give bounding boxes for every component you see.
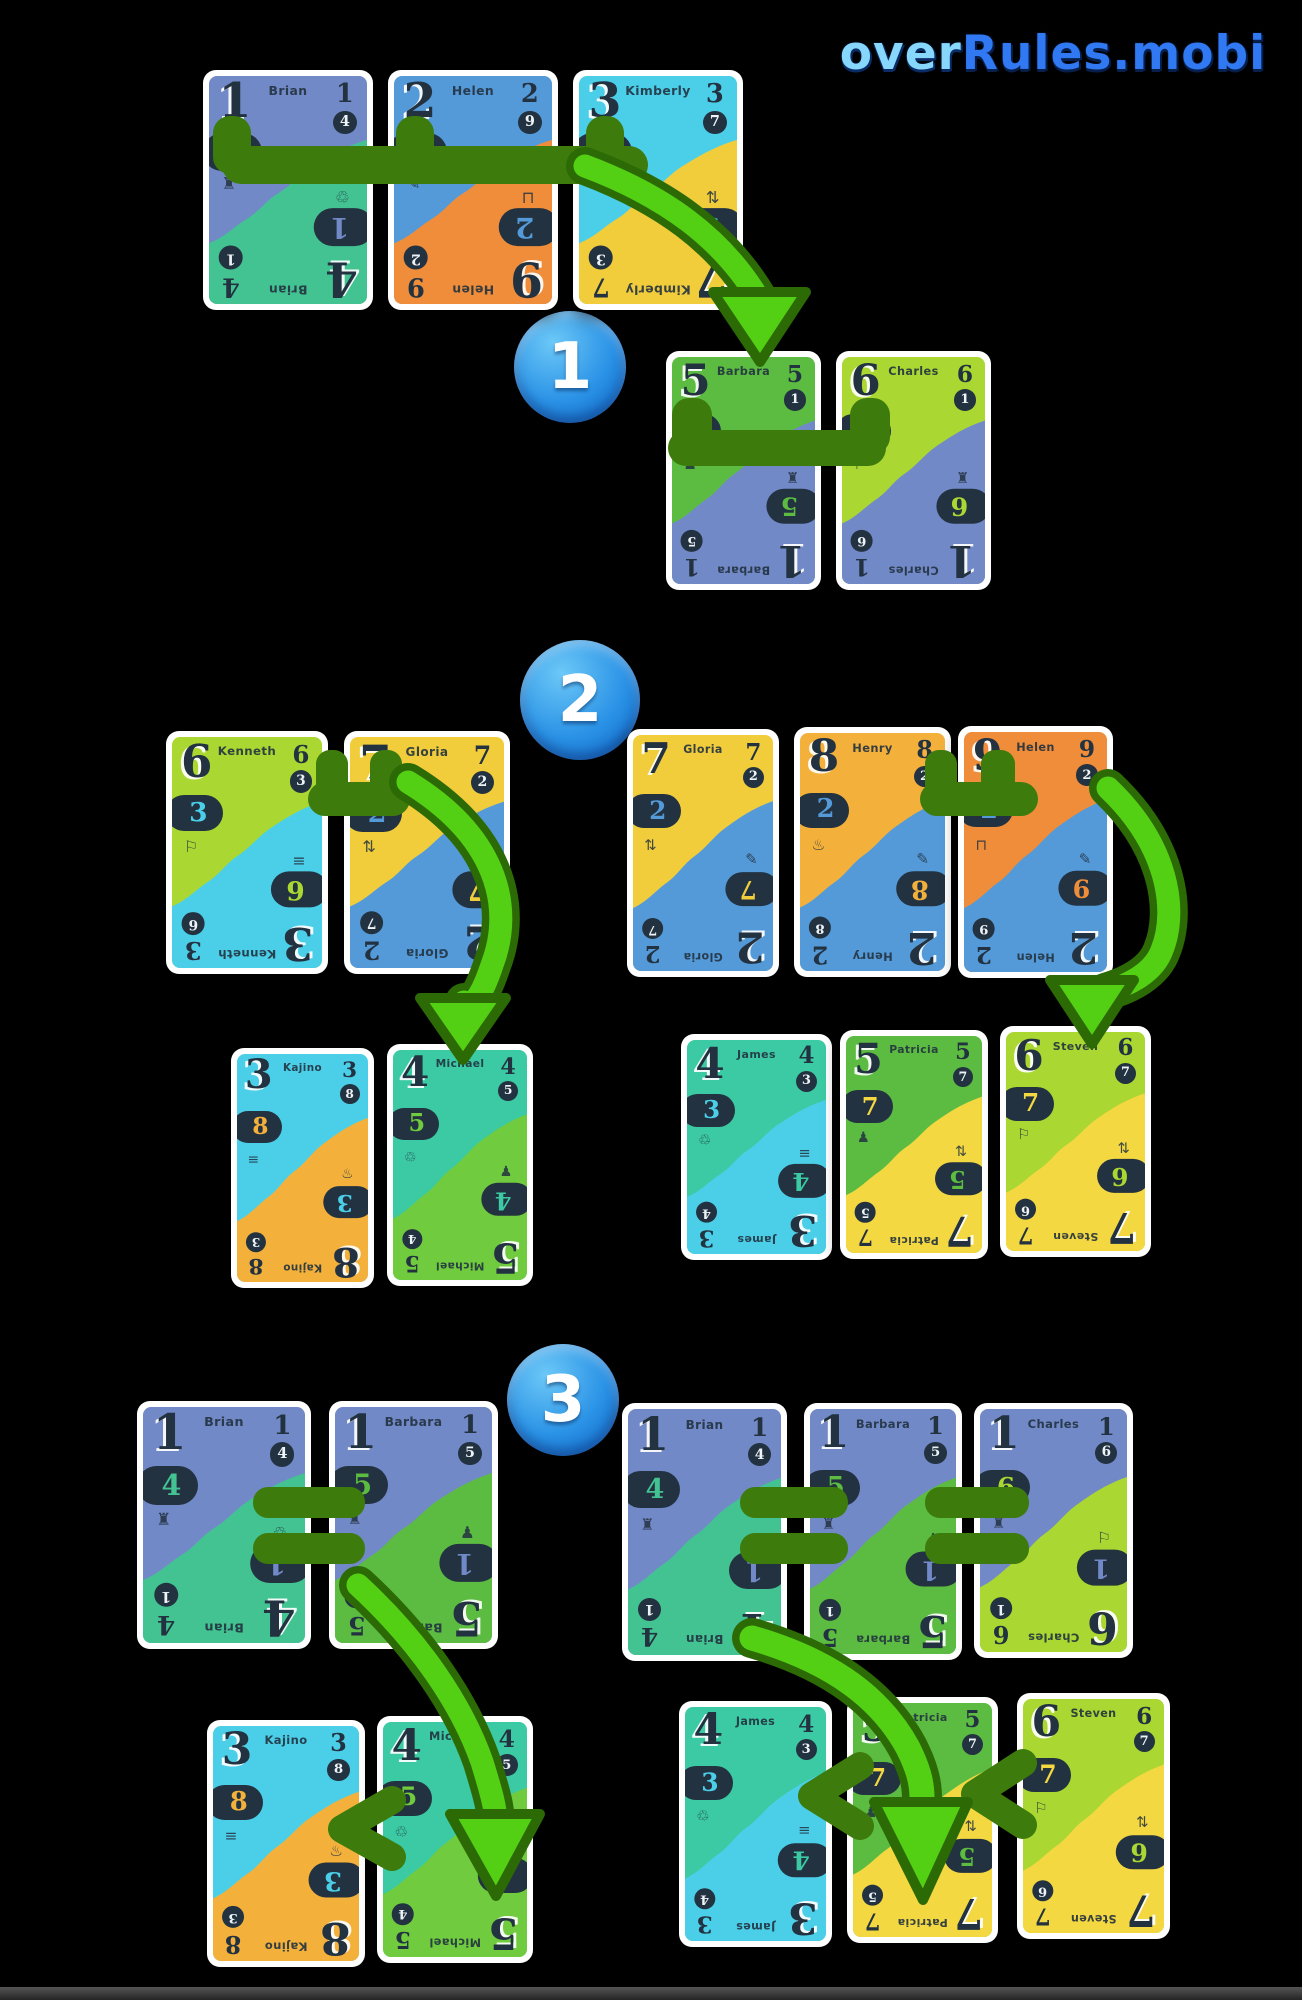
unicycle-icon: ♟ <box>500 1165 513 1179</box>
flashlight-icon: ✎ <box>1079 852 1092 867</box>
step-badge-3: 3 <box>507 1344 619 1456</box>
card-top-corner: 6 1 <box>954 363 976 411</box>
recycle-icon: ♲ <box>750 1532 764 1548</box>
card-face: 7 Gloria 7 2 2 ⇅ ✎ 7 2 7 2 Gloria <box>633 735 773 971</box>
card-flip-badge: 4 <box>402 1229 422 1249</box>
card-flip-badge: 1 <box>638 1598 661 1621</box>
card-name-reversed: Helen <box>964 951 1107 962</box>
card-name-reversed: Barbara <box>672 564 815 575</box>
card-face: 2 Helen 2 9 9 ✎ ⊓ 2 9 2 9 Helen <box>394 76 552 304</box>
card-top-value-pill: 5 <box>935 1162 982 1195</box>
game-card-james-step2-right-result[interactable]: 4 James 4 3 3 ♲ ≡ 4 3 4 3 James <box>681 1034 832 1260</box>
swing-icon: ⊓ <box>522 190 535 206</box>
card-corner-number: 2 <box>521 82 539 108</box>
unicycle-icon: ♟ <box>926 1532 940 1547</box>
game-card-henry-step2-right-hand[interactable]: 8 Henry 8 2 2 ♨ ✎ 8 2 8 2 Henry <box>794 727 951 977</box>
card-bottom-value-pill: 7 <box>579 133 632 171</box>
card-bottom-value-pill: 3 <box>687 1094 735 1128</box>
card-top-corner: 5 7 <box>962 1709 983 1756</box>
card-top-corner: 8 2 <box>914 739 936 788</box>
card-bottom-number: 7 <box>1126 1888 1156 1931</box>
card-flip-badge: 5 <box>681 530 703 552</box>
card-bottom-value-pill: 8 <box>213 1785 263 1820</box>
card-name-reversed: Brian <box>628 1633 781 1645</box>
card-flip-badge: 7 <box>642 918 663 939</box>
card-bottom-value-pill: 7 <box>1023 1758 1071 1792</box>
card-flip-badge: 4 <box>694 1888 715 1909</box>
card-flip-badge: 3 <box>222 1906 244 1928</box>
card-top-corner: 9 2 <box>1076 738 1098 786</box>
card-bottom-value-pill: 2 <box>800 793 849 828</box>
card-corner-number: 5 <box>787 363 803 386</box>
game-card-kajino-step3-left-result[interactable]: 3 Kajino 3 8 8 ≡ ♨ 3 8 3 8 Kajino <box>207 1720 365 1967</box>
card-top-value-pill: 2 <box>499 208 552 246</box>
card-face: 4 Michael 4 5 5 ♲ ♟ 4 5 4 5 Michael <box>383 1722 527 1957</box>
card-top-value-pill: 1 <box>906 1551 956 1586</box>
card-top-value-pill: 4 <box>778 1843 826 1877</box>
card-bottom-value-pill: 7 <box>853 1762 901 1796</box>
card-face: 8 Henry 8 2 2 ♨ ✎ 8 2 8 2 Henry <box>800 733 945 971</box>
card-flip-badge: 6 <box>851 530 873 552</box>
trampoline-icon: ♨ <box>812 838 826 853</box>
card-top-corner: 3 8 <box>327 1732 349 1781</box>
card-top-corner: 5 1 <box>784 363 806 411</box>
trampoline-icon: ♨ <box>341 1168 353 1182</box>
card-flip-badge: 5 <box>498 1081 518 1101</box>
card-name-reversed: Henry <box>800 950 945 961</box>
card-name-reversed: Gloria <box>633 951 773 962</box>
unicycle-icon: ♟ <box>864 1806 877 1821</box>
game-card-steven-step2-right-result[interactable]: 6 Steven 6 7 7 ⚐ ⇅ 6 7 6 7 Steven <box>1000 1026 1151 1257</box>
card-bottom-number: 7 <box>1107 1207 1136 1249</box>
card-name-reversed: Kimberly <box>579 283 737 295</box>
arrows-icon: ⇅ <box>964 1820 976 1835</box>
game-card-helen9-step2-right-hand[interactable]: 9 Helen 9 2 2 ⊓ ✎ 9 2 9 2 Helen <box>958 726 1113 978</box>
logo-text-dark: Rules.mobi <box>962 26 1266 81</box>
card-face: 3 Kimberly 3 7 7 ≡ ⇅ 3 7 3 7 Kimberly <box>579 76 737 304</box>
card-top-corner: 1 6 <box>1095 1415 1117 1464</box>
card-face: 5 Barbara 5 1 1 ♟ ♜ 5 1 5 1 Barbara <box>672 357 815 584</box>
card-top-value-pill: 4 <box>478 1858 527 1893</box>
card-top-corner: 1 5 <box>924 1415 946 1464</box>
card-flip-badge: 4 <box>696 1202 717 1223</box>
game-card-gloria-step2-right-hand[interactable]: 7 Gloria 7 2 2 ⇅ ✎ 7 2 7 2 Gloria <box>627 729 779 977</box>
card-corner-number: 6 <box>1136 1705 1152 1728</box>
card-bottom-value-pill: 2 <box>964 792 1013 827</box>
card-flip-badge: 5 <box>924 1442 946 1464</box>
card-corner-number: 6 <box>292 743 309 768</box>
card-face: 6 Steven 6 7 7 ⚐ ⇅ 6 7 6 7 Steven <box>1006 1032 1145 1251</box>
card-face: 1 Brian 1 4 4 ♜ ♲ 1 4 1 4 Brian <box>143 1407 305 1643</box>
flashlight-icon: ✎ <box>407 176 421 192</box>
card-flip-badge: 5 <box>458 1442 482 1466</box>
card-corner-number: 8 <box>916 739 933 763</box>
card-bottom-value-pill: 2 <box>633 794 681 828</box>
card-face: 1 Barbara 1 5 5 ♜ ♟ 1 5 1 5 Barbara <box>335 1407 492 1643</box>
card-top-corner: 1 5 <box>458 1413 482 1465</box>
card-flip-badge: 7 <box>703 111 727 135</box>
card-top-value-pill: 7 <box>452 871 504 908</box>
bus-icon: ♜ <box>822 1517 836 1532</box>
card-top-corner: 4 5 <box>496 1728 518 1776</box>
card-top-value-pill: 3 <box>309 1862 359 1897</box>
bus-icon: ♜ <box>992 1516 1006 1531</box>
card-corner-number: 1 <box>461 1413 479 1439</box>
arrows-icon: ⇅ <box>362 839 375 855</box>
recycle-icon: ♲ <box>698 1134 711 1149</box>
card-flip-badge: 6 <box>182 912 205 935</box>
card-face: 4 James 4 3 3 ♲ ≡ 4 3 4 3 James <box>687 1040 826 1254</box>
card-flip-badge: 3 <box>290 770 313 793</box>
card-face: 1 Barbara 1 5 5 ♜ ♟ 1 5 1 5 Barbara <box>810 1409 956 1654</box>
card-top-value-pill: 1 <box>439 1544 492 1582</box>
card-corner-number: 4 <box>499 1728 515 1752</box>
card-corner-number: 1 <box>1098 1415 1115 1439</box>
step-badge-1: 1 <box>514 311 626 423</box>
card-bottom-value-pill: 8 <box>237 1111 282 1143</box>
card-flip-badge: 7 <box>1115 1063 1136 1084</box>
card-flip-badge: 3 <box>796 1071 817 1092</box>
card-flip-badge: 4 <box>270 1442 294 1466</box>
card-name-reversed: Kajino <box>237 1262 368 1272</box>
card-flip-badge: 1 <box>990 1597 1012 1619</box>
card-top-corner: 1 4 <box>748 1415 771 1466</box>
card-flip-badge: 2 <box>471 771 494 794</box>
table-edge <box>0 1987 1302 2000</box>
arrows-icon: ⇅ <box>955 1145 967 1159</box>
card-top-corner: 4 5 <box>498 1056 518 1101</box>
game-card-helen2-step1-hand[interactable]: 2 Helen 2 9 9 ✎ ⊓ 2 9 2 9 Helen <box>388 70 558 310</box>
card-bottom-value-pill: 2 <box>350 795 402 832</box>
card-top-corner: 6 7 <box>1115 1037 1136 1084</box>
card-bottom-number: 7 <box>954 1893 983 1935</box>
card-flip-badge: 9 <box>518 111 542 135</box>
card-face: 3 Kajino 3 8 8 ≡ ♨ 3 8 3 8 Kajino <box>213 1726 359 1961</box>
card-top-corner: 1 4 <box>333 82 357 135</box>
card-bottom-value-pill: 5 <box>393 1108 439 1141</box>
card-bottom-number: 8 <box>320 1915 351 1959</box>
card-face: 6 Kenneth 6 3 3 ⚐ ≡ 6 3 6 3 Kenneth <box>172 737 322 968</box>
card-corner-number: 4 <box>799 1045 815 1068</box>
flashlight-icon: ✎ <box>745 853 757 868</box>
film-icon: ≡ <box>225 1829 238 1844</box>
film-icon: ≡ <box>798 1147 810 1162</box>
card-name-reversed: Gloria <box>350 947 504 959</box>
card-top-value-pill: 1 <box>729 1552 781 1589</box>
card-name-reversed: Charles <box>842 564 985 575</box>
card-name-reversed: Kajino <box>213 1940 359 1952</box>
card-top-value-pill: 1 <box>250 1544 305 1583</box>
card-corner-number: 9 <box>1079 738 1095 761</box>
card-top-value-pill: 8 <box>896 871 945 906</box>
card-top-value-pill: 4 <box>481 1183 527 1216</box>
step-badge-2: 2 <box>520 640 640 760</box>
game-card-charles1-step3-right-hand[interactable]: 1 Charles 1 6 6 ♜ ⚐ 1 6 1 6 Charles <box>974 1403 1133 1658</box>
card-name-reversed: Charles <box>980 1631 1127 1643</box>
card-flip-badge: 6 <box>1032 1880 1053 1901</box>
card-bottom-number: 3 <box>282 921 313 966</box>
card-name-reversed: Helen <box>394 283 552 295</box>
game-card-barbara5-step1-result[interactable]: 5 Barbara 5 1 1 ♟ ♜ 5 1 5 1 Barbara <box>666 351 821 590</box>
card-face: 4 James 4 3 3 ♲ ≡ 4 3 4 3 James <box>685 1707 826 1941</box>
recycle-icon: ♲ <box>272 1525 287 1542</box>
card-corner-number: 1 <box>336 82 354 108</box>
card-flip-badge: 5 <box>862 1885 883 1906</box>
card-top-value-pill: 9 <box>1058 871 1107 906</box>
game-card-brian-step1-hand[interactable]: 1 Brian 1 4 4 ♜ ♲ 1 4 1 4 Brian <box>203 70 373 310</box>
card-top-corner: 4 3 <box>796 1713 817 1760</box>
card-face: 3 Kajino 3 8 8 ≡ ♨ 3 8 3 8 Kajino <box>237 1054 368 1282</box>
card-top-corner: 3 8 <box>340 1060 360 1104</box>
film-icon: ≡ <box>247 1154 259 1168</box>
card-face: 5 Patricia 5 7 7 ♟ ⇅ 5 7 5 7 Patricia <box>853 1703 992 1937</box>
card-flip-badge: 3 <box>796 1739 817 1760</box>
card-flip-badge: 4 <box>392 1903 414 1925</box>
card-corner-number: 6 <box>1118 1037 1134 1060</box>
card-bottom-number: 3 <box>788 1210 817 1252</box>
card-top-corner: 6 3 <box>290 743 313 793</box>
card-name-reversed: James <box>687 1234 826 1245</box>
card-flip-badge: 5 <box>496 1754 518 1776</box>
card-bottom-value-pill: 4 <box>143 1466 198 1505</box>
balloon-icon: ⚐ <box>853 457 866 472</box>
card-name-reversed: Patricia <box>846 1234 982 1245</box>
bus-icon: ♜ <box>640 1517 654 1533</box>
card-flip-badge: 4 <box>333 111 357 135</box>
card-top-value-pill: 1 <box>1077 1550 1127 1586</box>
card-top-value-pill: 4 <box>778 1164 826 1198</box>
card-flip-badge: 2 <box>743 767 764 788</box>
bus-icon: ♜ <box>956 471 969 486</box>
card-bottom-number: 4 <box>740 1607 772 1653</box>
recycle-icon: ♲ <box>335 190 350 206</box>
game-card-barbara1-step3-right-hand[interactable]: 1 Barbara 1 5 5 ♜ ♟ 1 5 1 5 Barbara <box>804 1403 962 1660</box>
card-face: 5 Patricia 5 7 7 ♟ ⇅ 5 7 5 7 Patricia <box>846 1036 982 1253</box>
card-name-reversed: Michael <box>393 1260 527 1271</box>
card-bottom-value-pill: 7 <box>846 1090 893 1123</box>
arrows-icon: ⇅ <box>644 839 656 854</box>
tutorial-page: overRules.mobi 1 2 3 1 Brian 1 4 4 ♜ ♲ 1… <box>0 0 1302 2000</box>
game-card-steven-step3-right-result[interactable]: 6 Steven 6 7 7 ⚐ ⇅ 6 7 6 7 Steven <box>1017 1693 1170 1939</box>
card-top-value-pill: 3 <box>323 1186 368 1218</box>
card-flip-badge: 2 <box>1076 764 1098 786</box>
card-corner-number: 3 <box>330 1732 347 1756</box>
card-flip-badge: 7 <box>360 911 383 934</box>
card-name-reversed: Barbara <box>810 1633 956 1645</box>
unicycle-icon: ♟ <box>460 1525 475 1541</box>
card-flip-badge: 1 <box>345 1585 369 1609</box>
card-flip-badge: 8 <box>340 1084 360 1104</box>
card-bottom-value-pill: 1 <box>842 414 891 449</box>
card-name-reversed: Steven <box>1006 1231 1145 1242</box>
card-corner-number: 3 <box>342 1060 357 1082</box>
card-flip-badge: 1 <box>954 389 976 411</box>
card-flip-badge: 4 <box>748 1443 771 1466</box>
card-top-value-pill: 6 <box>1097 1159 1145 1193</box>
card-top-corner: 3 7 <box>703 82 727 135</box>
card-flip-badge: 9 <box>973 918 995 940</box>
card-bottom-number: 6 <box>1087 1605 1118 1649</box>
balloon-icon: ⚐ <box>1034 1802 1047 1817</box>
recycle-icon: ♲ <box>696 1810 709 1825</box>
card-face: 1 Brian 1 4 4 ♜ ♲ 1 4 1 4 Brian <box>209 76 367 304</box>
game-card-patricia-step2-right-result[interactable]: 5 Patricia 5 7 7 ♟ ⇅ 5 7 5 7 Patricia <box>840 1030 988 1259</box>
card-name-reversed: Michael <box>383 1936 527 1947</box>
card-bottom-number: 2 <box>906 925 936 969</box>
card-bottom-number: 2 <box>735 926 764 968</box>
card-face: 9 Helen 9 2 2 ⊓ ✎ 9 2 9 2 Helen <box>964 732 1107 972</box>
game-card-brian-step3-left-hand[interactable]: 1 Brian 1 4 4 ♜ ♲ 1 4 1 4 Brian <box>137 1401 311 1649</box>
card-corner-number: 7 <box>745 741 761 764</box>
arrows-icon: ⇅ <box>706 190 720 206</box>
film-icon: ≡ <box>592 176 606 192</box>
card-name-reversed: Barbara <box>335 1621 492 1633</box>
balloon-icon: ⚐ <box>1097 1531 1111 1546</box>
game-card-kimberly-step1-hand[interactable]: 3 Kimberly 3 7 7 ≡ ⇅ 3 7 3 7 Kimberly <box>573 70 743 310</box>
card-bottom-number: 5 <box>491 1237 519 1278</box>
flashlight-icon: ✎ <box>916 852 929 867</box>
card-flip-badge: 3 <box>589 246 613 270</box>
card-top-value-pill: 6 <box>936 489 985 524</box>
card-name-reversed: Kenneth <box>172 947 322 959</box>
card-flip-badge: 1 <box>219 246 243 270</box>
card-bottom-number: 5 <box>488 1911 518 1954</box>
recycle-icon: ♲ <box>404 1151 417 1165</box>
card-flip-badge: 3 <box>246 1232 266 1252</box>
unicycle-icon: ♟ <box>498 1840 512 1855</box>
card-bottom-value-pill: 9 <box>394 133 447 171</box>
card-face: 4 Michael 4 5 5 ♲ ♟ 4 5 4 5 Michael <box>393 1050 527 1280</box>
card-bottom-value-pill: 5 <box>810 1470 860 1505</box>
film-icon: ≡ <box>292 853 305 869</box>
card-top-value-pill: 5 <box>766 489 815 524</box>
card-top-corner: 4 3 <box>796 1045 817 1092</box>
game-card-charles6-step1-result[interactable]: 6 Charles 6 1 1 ⚐ ♜ 6 1 6 1 Charles <box>836 351 991 590</box>
game-card-barbara1-step3-left-hand[interactable]: 1 Barbara 1 5 5 ♜ ♟ 1 5 1 5 Barbara <box>329 1401 498 1649</box>
card-bottom-value-pill: 4 <box>628 1471 680 1508</box>
card-flip-badge: 5 <box>855 1202 876 1223</box>
site-logo: overRules.mobi <box>828 26 1278 81</box>
card-flip-badge: 7 <box>953 1067 974 1088</box>
card-flip-badge: 1 <box>784 389 806 411</box>
card-bottom-number: 5 <box>450 1594 483 1641</box>
card-name-reversed: Brian <box>209 283 367 295</box>
card-flip-badge: 1 <box>819 1599 841 1621</box>
game-card-patricia-step3-right-result[interactable]: 5 Patricia 5 7 7 ♟ ⇅ 5 7 5 7 Patricia <box>847 1697 998 1943</box>
balloon-icon: ⚐ <box>1017 1128 1030 1143</box>
card-top-value-pill: 6 <box>1116 1835 1164 1869</box>
card-bottom-value-pill: 3 <box>172 795 223 831</box>
card-corner-number: 4 <box>798 1713 814 1736</box>
card-flip-badge: 2 <box>914 766 936 788</box>
card-bottom-number: 8 <box>332 1240 360 1280</box>
game-card-michael-step2-left-result[interactable]: 4 Michael 4 5 5 ♲ ♟ 4 5 4 5 Michael <box>387 1044 533 1286</box>
card-name-reversed: Patricia <box>853 1917 992 1928</box>
step-number: 2 <box>558 663 603 737</box>
card-flip-badge: 6 <box>1095 1442 1117 1464</box>
card-flip-badge: 1 <box>154 1583 178 1607</box>
card-name-reversed: Steven <box>1023 1913 1164 1924</box>
recycle-icon: ♲ <box>395 1825 409 1840</box>
card-name-reversed: James <box>685 1921 826 1932</box>
card-face: 1 Charles 1 6 6 ♜ ⚐ 1 6 1 6 Charles <box>980 1409 1127 1652</box>
unicycle-icon: ♟ <box>683 457 696 472</box>
step-number: 3 <box>541 1363 586 1437</box>
card-bottom-value-pill: 7 <box>1006 1087 1054 1121</box>
card-bottom-number: 5 <box>917 1608 948 1652</box>
arrows-icon: ⇅ <box>1117 1142 1129 1157</box>
bus-icon: ♜ <box>222 176 237 192</box>
card-corner-number: 1 <box>751 1415 768 1440</box>
card-bottom-number: 2 <box>1068 926 1098 969</box>
game-card-brian-step3-right-hand[interactable]: 1 Brian 1 4 4 ♜ ♲ 1 4 1 4 Brian <box>622 1403 787 1661</box>
card-top-value-pill: 5 <box>944 1839 992 1873</box>
card-top-corner: 5 7 <box>953 1041 974 1087</box>
card-flip-badge: 8 <box>327 1759 349 1781</box>
card-corner-number: 1 <box>273 1413 291 1439</box>
card-bottom-value-pill: 4 <box>209 133 262 171</box>
bus-icon: ♜ <box>786 471 799 486</box>
flashlight-icon: ✎ <box>474 853 487 869</box>
card-corner-number: 6 <box>957 363 973 386</box>
card-flip-badge: 7 <box>962 1734 983 1755</box>
card-face: 1 Brian 1 4 4 ♜ ♲ 1 4 1 4 Brian <box>628 1409 781 1655</box>
card-top-corner: 6 7 <box>1134 1705 1155 1752</box>
card-bottom-value-pill: 3 <box>685 1766 733 1800</box>
card-flip-badge: 6 <box>1015 1199 1036 1220</box>
card-bottom-number: 3 <box>788 1896 818 1939</box>
card-face: 6 Steven 6 7 7 ⚐ ⇅ 6 7 6 7 Steven <box>1023 1699 1164 1933</box>
card-corner-number: 3 <box>706 82 724 108</box>
card-corner-number: 5 <box>965 1709 981 1732</box>
card-bottom-value-pill: 5 <box>335 1466 388 1504</box>
card-name-reversed: Brian <box>143 1621 305 1634</box>
card-top-value-pill: 1 <box>314 208 367 246</box>
swing-icon: ⊓ <box>975 838 987 853</box>
game-card-kenneth-step2-left-hand[interactable]: 6 Kenneth 6 3 3 ⚐ ≡ 6 3 6 3 Kenneth <box>166 731 328 974</box>
card-corner-number: 1 <box>927 1415 944 1439</box>
card-top-corner: 7 2 <box>471 743 494 794</box>
bus-icon: ♜ <box>156 1511 171 1528</box>
card-bottom-value-pill: 5 <box>383 1781 432 1816</box>
balloon-icon: ⚐ <box>184 839 198 855</box>
card-flip-badge: 8 <box>809 917 831 939</box>
card-top-value-pill: 6 <box>271 871 322 907</box>
bus-icon: ♜ <box>348 1511 363 1527</box>
card-top-value-pill: 3 <box>684 208 737 246</box>
card-corner-number: 5 <box>955 1041 971 1063</box>
arrows-icon: ⇅ <box>1136 1816 1148 1831</box>
game-card-james-step3-right-result[interactable]: 4 James 4 3 3 ♲ ≡ 4 3 4 3 James <box>679 1701 832 1947</box>
game-card-michael-step3-left-result[interactable]: 4 Michael 4 5 5 ♲ ♟ 4 5 4 5 Michael <box>377 1716 533 1963</box>
film-icon: ≡ <box>798 1824 810 1839</box>
card-flip-badge: 2 <box>404 246 428 270</box>
card-top-value-pill: 7 <box>725 872 773 906</box>
card-top-corner: 2 9 <box>518 82 542 135</box>
card-bottom-value-pill: 1 <box>672 414 721 449</box>
card-face: 6 Charles 6 1 1 ⚐ ♜ 6 1 6 1 Charles <box>842 357 985 584</box>
card-corner-number: 4 <box>500 1056 515 1078</box>
card-flip-badge: 7 <box>1134 1731 1155 1752</box>
game-card-kajino-step2-left-result[interactable]: 3 Kajino 3 8 8 ≡ ♨ 3 8 3 8 Kajino <box>231 1048 374 1288</box>
unicycle-icon: ♟ <box>857 1131 870 1145</box>
card-corner-number: 7 <box>474 743 492 768</box>
logo-text-light: over <box>840 26 962 81</box>
card-face: 7 Gloria 7 2 2 ⇅ ✎ 7 2 7 2 Gloria <box>350 737 504 968</box>
trampoline-icon: ♨ <box>329 1844 343 1859</box>
game-card-gloria-step2-left-hand[interactable]: 7 Gloria 7 2 2 ⇅ ✎ 7 2 7 2 Gloria <box>344 731 510 974</box>
card-top-corner: 7 2 <box>743 741 764 788</box>
